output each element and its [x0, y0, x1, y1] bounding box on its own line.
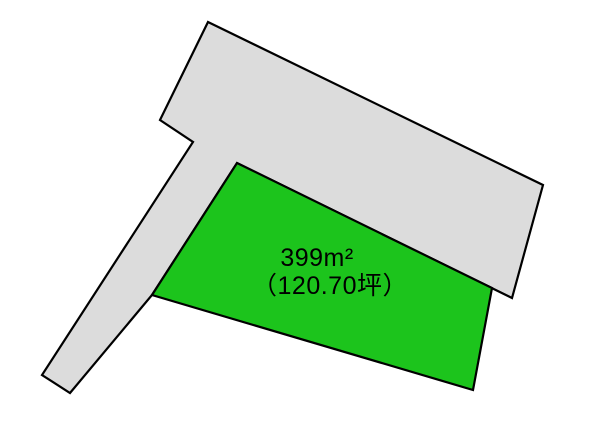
lot-diagram: 399m² （120.70坪） — [0, 0, 600, 425]
lot-diagram-canvas: 399m² （120.70坪） — [0, 0, 600, 425]
lot-area-tsubo-label: （120.70坪） — [252, 272, 408, 300]
lot-area-sqm-label: 399m² — [280, 244, 353, 272]
